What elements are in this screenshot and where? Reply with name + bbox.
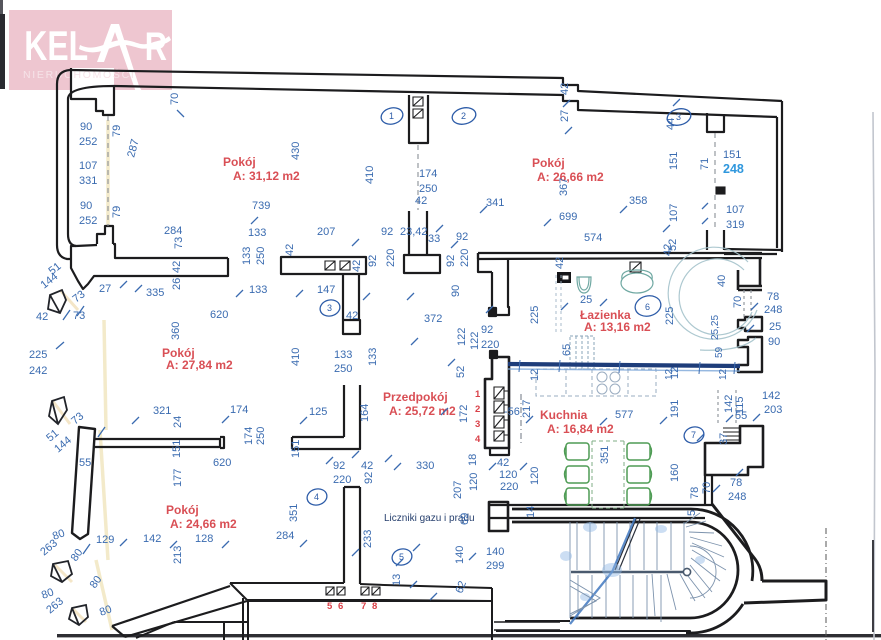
svg-text:151: 151 (668, 152, 680, 170)
svg-text:40: 40 (716, 275, 728, 287)
svg-text:55: 55 (79, 457, 91, 469)
svg-text:225: 225 (664, 307, 676, 325)
svg-text:330: 330 (416, 460, 434, 472)
svg-text:122: 122 (469, 332, 481, 350)
svg-text:1: 1 (389, 111, 394, 121)
svg-text:220: 220 (500, 481, 518, 493)
svg-text:125: 125 (309, 406, 327, 418)
svg-text:90: 90 (80, 121, 92, 133)
svg-text:115: 115 (734, 396, 746, 414)
svg-text:250: 250 (255, 427, 267, 445)
svg-text:6: 6 (645, 302, 650, 312)
svg-text:42: 42 (497, 457, 509, 469)
svg-text:KEL: KEL (24, 22, 88, 69)
svg-text:410: 410 (290, 348, 302, 366)
svg-text:174: 174 (419, 168, 437, 180)
svg-text:242: 242 (29, 365, 47, 377)
svg-text:A: 16,84 m2: A: 16,84 m2 (547, 422, 614, 436)
svg-text:739: 739 (252, 200, 270, 212)
svg-text:24: 24 (172, 416, 184, 428)
svg-text:7: 7 (361, 601, 366, 612)
svg-text:128: 128 (195, 533, 213, 545)
svg-text:4: 4 (475, 434, 481, 445)
svg-text:207: 207 (452, 481, 464, 499)
svg-text:6: 6 (338, 601, 343, 612)
svg-text:351: 351 (288, 504, 300, 522)
svg-text:248: 248 (723, 162, 744, 176)
svg-text:A: 27,84 m2: A: 27,84 m2 (166, 358, 233, 372)
svg-text:92: 92 (445, 255, 457, 267)
svg-text:220: 220 (385, 249, 397, 267)
svg-text:8: 8 (372, 601, 377, 612)
svg-text:351: 351 (599, 446, 611, 464)
svg-text:133: 133 (241, 247, 253, 265)
svg-text:321: 321 (153, 405, 171, 417)
svg-text:25,25: 25,25 (710, 315, 721, 340)
svg-text:70: 70 (169, 93, 181, 105)
svg-text:164: 164 (359, 404, 371, 422)
svg-text:250: 250 (419, 183, 437, 195)
svg-text:250: 250 (255, 247, 267, 265)
svg-text:220: 220 (481, 339, 499, 351)
svg-text:70: 70 (732, 296, 744, 308)
svg-text:225: 225 (29, 349, 47, 361)
svg-text:252: 252 (79, 215, 97, 227)
svg-text:284: 284 (276, 530, 294, 542)
svg-text:250: 250 (334, 363, 352, 375)
svg-text:42: 42 (559, 83, 571, 95)
svg-text:140: 140 (486, 546, 504, 558)
svg-text:699: 699 (559, 211, 577, 223)
svg-text:367: 367 (558, 178, 570, 196)
svg-text:52: 52 (455, 366, 467, 378)
svg-text:69: 69 (459, 513, 471, 525)
svg-text:120: 120 (499, 469, 517, 481)
svg-text:79: 79 (111, 125, 123, 137)
svg-text:42: 42 (351, 260, 363, 272)
svg-text:18: 18 (467, 454, 479, 466)
svg-text:27: 27 (99, 283, 111, 295)
svg-text:151: 151 (171, 440, 183, 458)
svg-text:372: 372 (424, 313, 442, 325)
svg-text:25: 25 (580, 294, 592, 306)
svg-text:142: 142 (762, 390, 780, 402)
svg-text:42: 42 (361, 460, 373, 472)
svg-text:92: 92 (333, 460, 345, 472)
svg-text:78: 78 (730, 477, 742, 489)
svg-text:203: 203 (764, 404, 782, 416)
svg-text:27: 27 (559, 110, 571, 122)
svg-text:92: 92 (363, 472, 375, 484)
svg-text:174: 174 (243, 427, 255, 445)
svg-text:90: 90 (450, 285, 462, 297)
svg-text:70: 70 (701, 482, 713, 494)
svg-text:78: 78 (689, 487, 701, 499)
svg-text:Pokój: Pokój (532, 156, 565, 170)
svg-text:2: 2 (461, 111, 466, 121)
svg-text:Pokój: Pokój (223, 155, 256, 169)
svg-text:284: 284 (164, 225, 182, 237)
svg-text:33: 33 (428, 233, 440, 245)
svg-text:A: 31,12 m2: A: 31,12 m2 (233, 169, 300, 183)
svg-text:3: 3 (327, 303, 332, 313)
svg-text:73: 73 (173, 237, 185, 249)
svg-text:23,42: 23,42 (400, 226, 428, 238)
svg-text:3: 3 (475, 419, 480, 430)
svg-text:620: 620 (210, 309, 228, 321)
svg-text:360: 360 (170, 322, 182, 340)
svg-text:5: 5 (327, 601, 333, 612)
svg-text:42: 42 (415, 195, 427, 207)
svg-text:92: 92 (481, 324, 493, 336)
svg-text:213: 213 (172, 546, 184, 564)
svg-text:358: 358 (629, 195, 647, 207)
svg-text:160: 160 (669, 464, 681, 482)
svg-text:13: 13 (391, 574, 403, 586)
svg-text:299: 299 (486, 560, 504, 572)
svg-text:A: 25,72 m2: A: 25,72 m2 (389, 404, 456, 418)
svg-text:620: 620 (213, 457, 231, 469)
svg-text:133: 133 (334, 349, 352, 361)
svg-text:331: 331 (79, 175, 97, 187)
svg-text:233: 233 (362, 530, 374, 548)
svg-text:A: 24,66 m2: A: 24,66 m2 (170, 517, 237, 531)
svg-text:90: 90 (80, 200, 92, 212)
svg-text:65: 65 (561, 344, 573, 356)
svg-text:92: 92 (381, 226, 393, 238)
svg-text:92: 92 (367, 255, 379, 267)
svg-text:147: 147 (317, 284, 335, 296)
svg-text:7: 7 (691, 430, 696, 440)
svg-text:133: 133 (367, 348, 379, 366)
svg-text:5: 5 (399, 552, 404, 562)
svg-text:252: 252 (79, 136, 97, 148)
svg-text:225: 225 (529, 306, 541, 324)
svg-text:3: 3 (676, 112, 681, 122)
svg-text:4: 4 (314, 492, 319, 502)
svg-text:90: 90 (768, 336, 780, 348)
svg-text:A: 13,16 m2: A: 13,16 m2 (584, 320, 651, 334)
svg-text:37: 37 (718, 433, 730, 445)
svg-text:220: 220 (333, 474, 351, 486)
svg-text:177: 177 (172, 469, 184, 487)
svg-text:42: 42 (284, 244, 296, 256)
svg-text:42: 42 (171, 261, 183, 273)
svg-text:12: 12 (669, 367, 681, 379)
svg-text:577: 577 (615, 409, 633, 421)
svg-text:335: 335 (146, 287, 164, 299)
svg-text:42: 42 (36, 311, 48, 323)
svg-text:Kuchnia: Kuchnia (540, 408, 588, 422)
svg-text:59: 59 (714, 346, 725, 358)
svg-text:25: 25 (769, 321, 781, 333)
svg-text:-56: -56 (504, 406, 520, 418)
svg-text:142: 142 (143, 533, 161, 545)
svg-text:174: 174 (230, 404, 248, 416)
svg-text:319: 319 (726, 219, 744, 231)
svg-text:140: 140 (454, 546, 466, 564)
svg-text:207: 207 (317, 226, 335, 238)
svg-text:129: 129 (96, 534, 114, 546)
svg-text:42: 42 (346, 310, 358, 322)
svg-text:14: 14 (525, 506, 537, 518)
svg-text:122: 122 (456, 328, 468, 346)
svg-text:A: 26,66 m2: A: 26,66 m2 (537, 170, 604, 184)
svg-text:220: 220 (459, 249, 471, 267)
svg-text:42: 42 (662, 244, 674, 256)
svg-text:2: 2 (475, 404, 480, 415)
svg-text:78: 78 (767, 291, 779, 303)
svg-text:71: 71 (699, 158, 711, 170)
svg-text:1: 1 (475, 389, 481, 400)
svg-text:217: 217 (521, 400, 533, 418)
svg-text:191: 191 (669, 400, 681, 418)
svg-text:248: 248 (764, 304, 782, 316)
svg-text:172: 172 (458, 405, 470, 423)
svg-text:410: 410 (364, 166, 376, 184)
svg-text:133: 133 (249, 284, 267, 296)
svg-text:Pokój: Pokój (166, 503, 199, 517)
svg-text:107: 107 (726, 204, 744, 216)
svg-text:12: 12 (529, 369, 541, 381)
svg-text:133: 133 (248, 227, 266, 239)
svg-text:5: 5 (686, 510, 698, 516)
svg-text:12: 12 (718, 368, 729, 380)
svg-text:574: 574 (584, 232, 602, 244)
svg-text:79: 79 (111, 206, 123, 218)
svg-text:42: 42 (554, 257, 566, 269)
svg-text:73: 73 (73, 310, 85, 322)
svg-text:341: 341 (486, 197, 504, 209)
svg-text:26: 26 (171, 278, 183, 290)
svg-text:430: 430 (290, 142, 302, 160)
svg-text:120: 120 (468, 473, 480, 491)
svg-text:151: 151 (290, 440, 302, 458)
svg-text:Przedpokój: Przedpokój (383, 390, 448, 404)
svg-text:107: 107 (668, 204, 680, 222)
svg-text:120: 120 (529, 467, 541, 485)
svg-text:248: 248 (728, 491, 746, 503)
svg-text:107: 107 (79, 160, 97, 172)
svg-text:151: 151 (723, 149, 741, 161)
